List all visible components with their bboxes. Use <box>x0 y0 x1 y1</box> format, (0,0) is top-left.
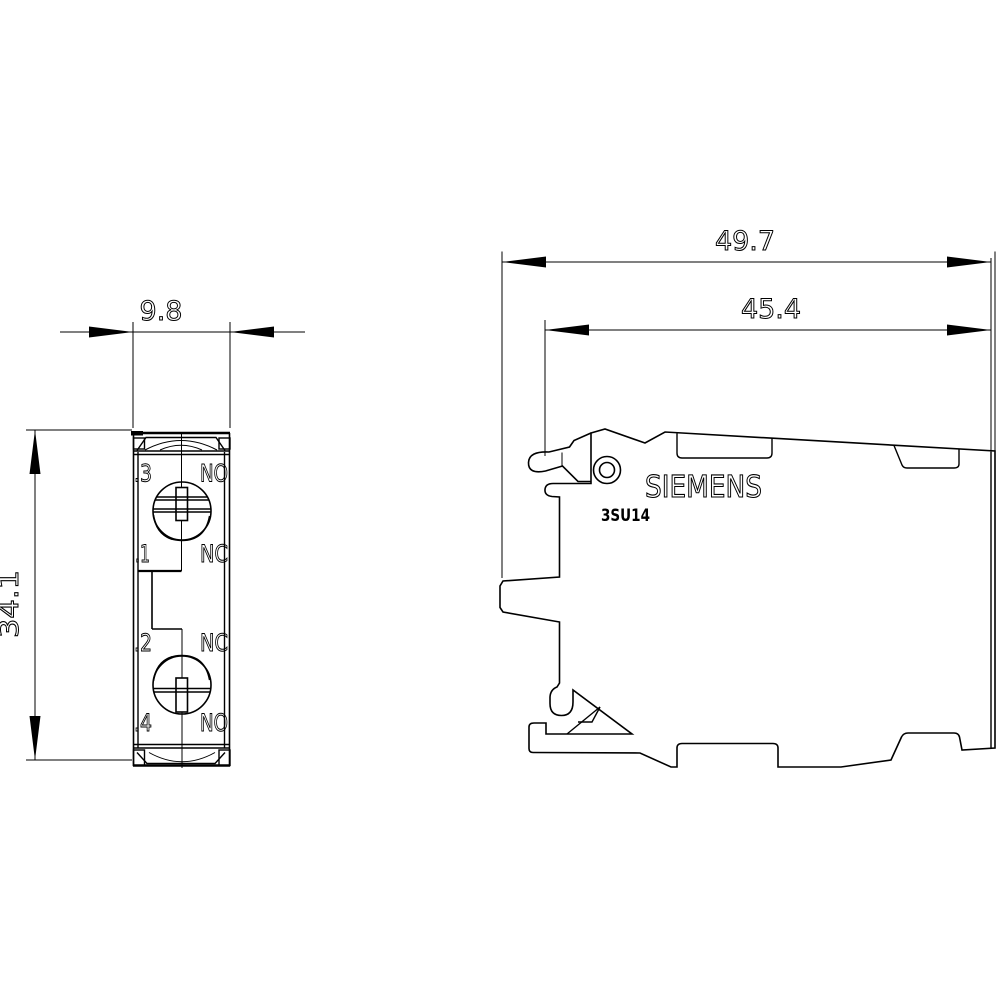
terminal-bottom-rim-arc-2 <box>153 657 172 684</box>
front-height-value: 34.1 <box>0 570 25 638</box>
terminal-number-2: .2 <box>134 629 152 657</box>
terminal-type-nc-top: NC <box>200 540 228 568</box>
dimension-arrowhead-right <box>230 327 274 338</box>
drawing-canvas: .3 NO .1 NC .2 NC .4 NO SIEMENS 3SU14 <box>0 0 1000 1000</box>
terminal-type-no-top: NO <box>200 460 228 488</box>
front-width-value: 9.8 <box>140 296 183 327</box>
terminal-type-no-bottom: NO <box>200 709 228 737</box>
dimension-arrowhead-bottom <box>30 716 41 760</box>
dimension-arrowhead-left <box>89 327 133 338</box>
model-number-text: 3SU14 <box>601 506 650 526</box>
side-overall-value: 49.7 <box>715 226 775 257</box>
dimension-arrowhead-left <box>545 325 589 336</box>
pivot-pin-outer <box>594 457 621 484</box>
contact-link-line <box>138 571 182 629</box>
side-view: SIEMENS 3SU14 <box>500 429 995 767</box>
front-view: .3 NO .1 NC .2 NC .4 NO <box>131 431 230 768</box>
din-rail-foot-detail <box>567 707 600 734</box>
top-cap-section-mark <box>131 431 143 436</box>
terminal-bottom-screw-slot <box>176 678 188 712</box>
dimension-arrowhead-left <box>502 257 546 268</box>
dimension-front-height: 34.1 <box>0 430 132 760</box>
terminal-top-rim-arc-2 <box>153 513 172 540</box>
side-inner-value: 45.4 <box>741 294 801 325</box>
dimension-arrowhead-top <box>30 430 41 474</box>
terminal-number-3: .3 <box>134 460 152 488</box>
pivot-pin-inner <box>600 463 615 478</box>
dimension-arrowhead-right <box>947 325 991 336</box>
dimension-arrowhead-right <box>947 257 991 268</box>
terminal-number-4: .4 <box>134 709 152 737</box>
siemens-logo-text: SIEMENS <box>645 470 762 505</box>
bottom-cap-left-tab <box>134 750 145 766</box>
dimension-side-overall: 49.7 <box>502 226 995 578</box>
dimension-front-width: 9.8 <box>60 296 305 428</box>
mounting-latch <box>528 433 591 482</box>
terminal-type-nc-bottom: NC <box>200 629 228 657</box>
foot-diagonal-line <box>567 707 600 734</box>
terminal-number-1: .1 <box>135 540 150 568</box>
terminal-top-screw-slot <box>176 488 188 521</box>
technical-drawing: .3 NO .1 NC .2 NC .4 NO SIEMENS 3SU14 <box>0 0 1000 1000</box>
